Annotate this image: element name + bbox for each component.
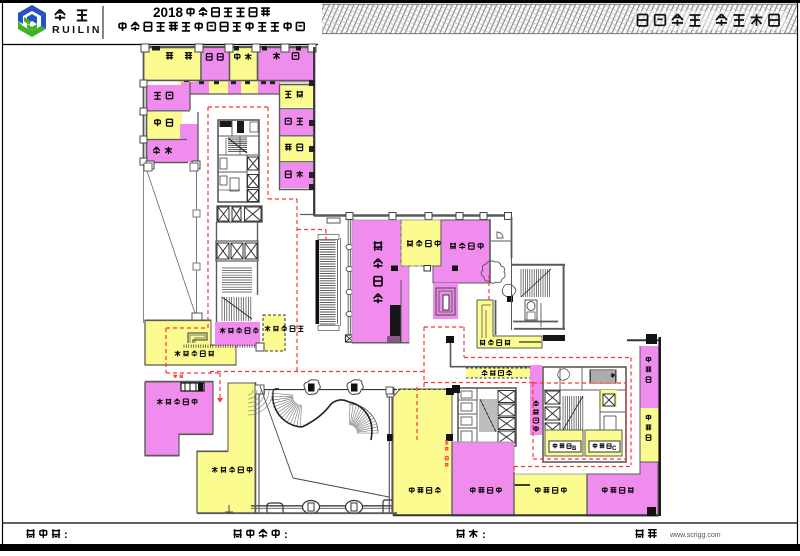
svg-text:2018: 2018 [153,5,184,20]
svg-text::: : [64,529,68,541]
svg-text:B: B [572,446,577,452]
svg-text::: : [284,529,288,541]
svg-text:www.scrigg.com: www.scrigg.com [669,532,721,539]
svg-text:RUILIN: RUILIN [52,24,102,36]
svg-text:C: C [612,446,617,452]
svg-text::: : [482,529,486,541]
